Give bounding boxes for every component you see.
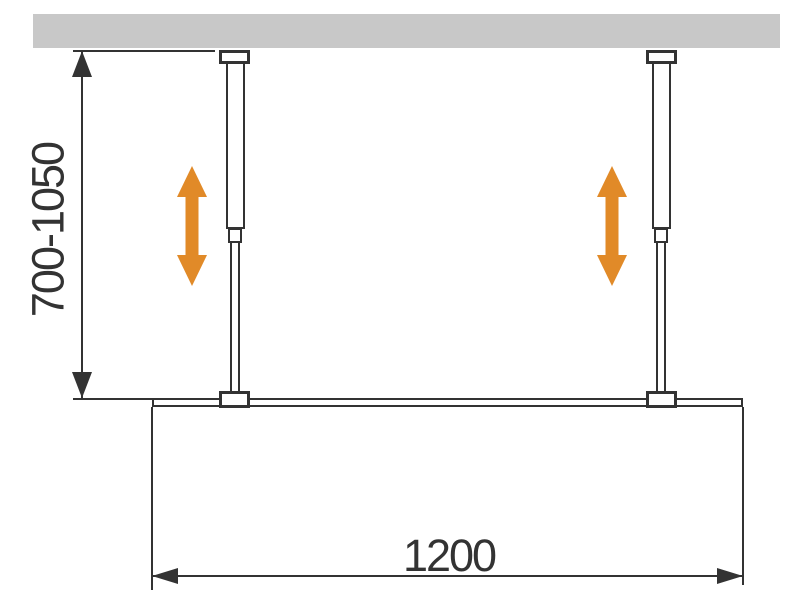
right-height-adjust-arrow-icon xyxy=(597,166,627,286)
right-inner-rod xyxy=(656,241,666,394)
left-wall-bracket xyxy=(219,50,250,64)
arrow-down-head xyxy=(177,255,207,286)
right-wall-bracket xyxy=(646,50,677,64)
extension-line-right xyxy=(742,407,744,585)
extension-line-left xyxy=(151,407,153,590)
extension-line-top xyxy=(73,50,215,52)
arrow-shaft xyxy=(606,193,619,259)
right-outer-tube xyxy=(652,62,671,229)
extension-line-glass-left xyxy=(73,398,153,400)
left-outer-tube xyxy=(226,62,245,229)
diagram-canvas: 700-1050 1200 xyxy=(0,0,800,599)
wall-bar xyxy=(33,14,780,48)
arrowhead-right-icon xyxy=(717,568,743,584)
length-dimension-line xyxy=(81,52,83,398)
arrowhead-left-icon xyxy=(152,568,178,584)
right-glass-clamp xyxy=(646,391,677,408)
support-bar-length-label: 700-1050 xyxy=(26,143,71,317)
left-inner-rod xyxy=(230,241,240,394)
panel-width-label: 1200 xyxy=(403,533,495,578)
left-height-adjust-arrow-icon xyxy=(177,166,207,286)
left-glass-clamp xyxy=(219,391,250,408)
arrowhead-down-icon xyxy=(72,372,92,398)
arrow-shaft xyxy=(186,193,199,259)
arrowhead-up-icon xyxy=(72,51,92,77)
arrow-down-head xyxy=(597,255,627,286)
